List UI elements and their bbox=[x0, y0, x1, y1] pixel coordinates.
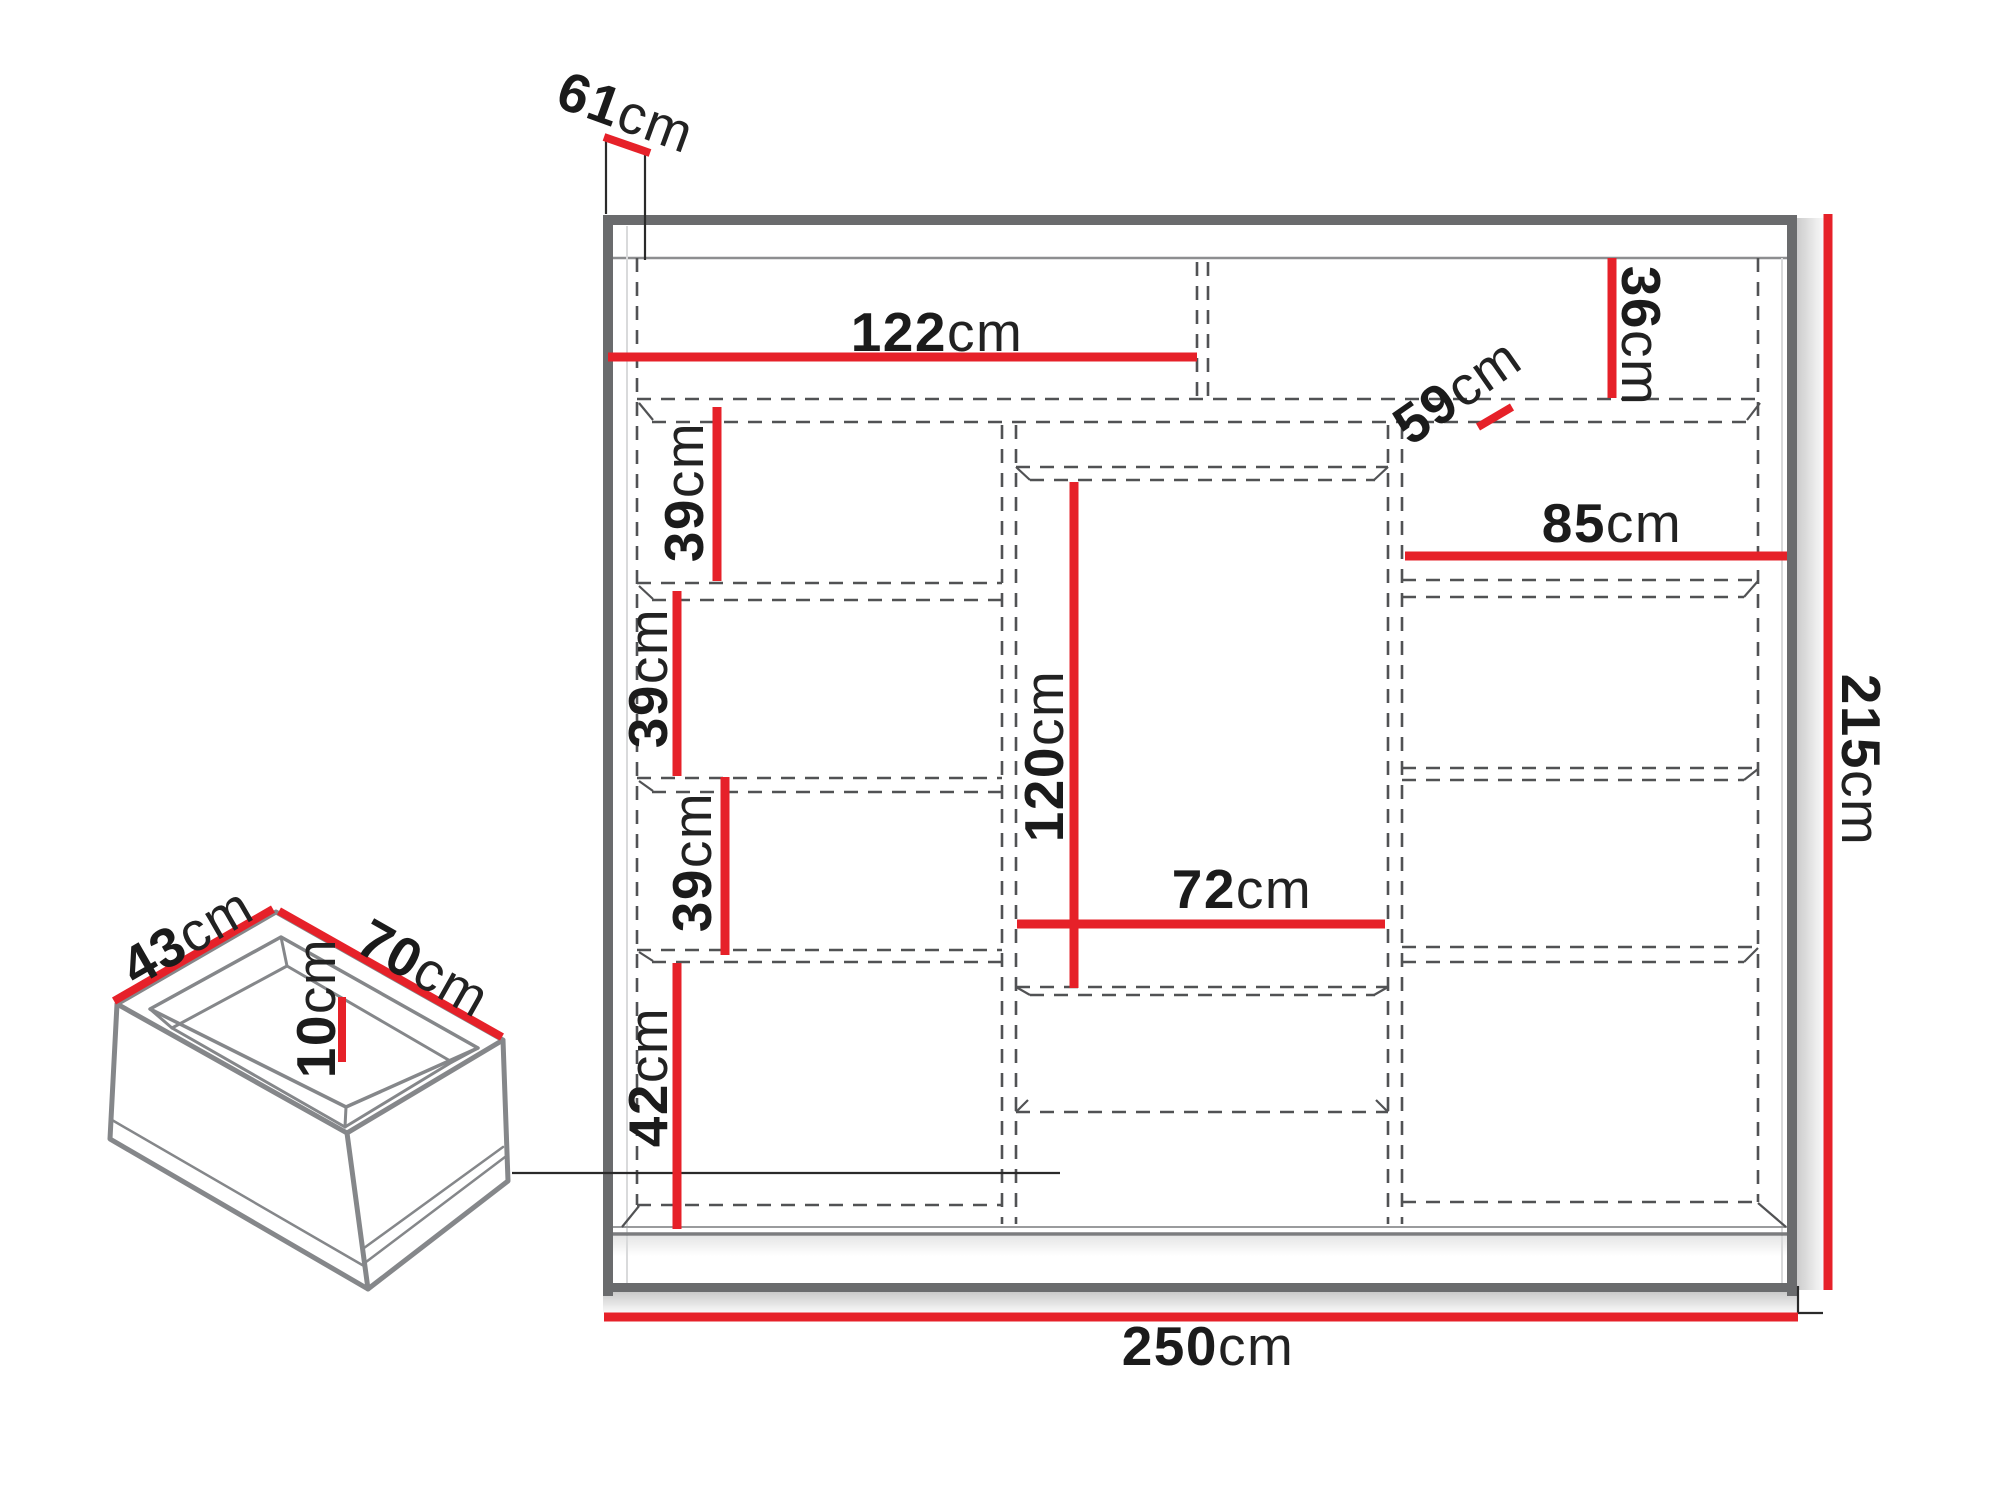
dim-label-drawer-depth: 43cm bbox=[111, 874, 264, 998]
dimension-diagram: 61cm 122cm 36cm 59cm 85cm 39cm 39cm 39cm… bbox=[0, 0, 2000, 1499]
dim-label-drawer-width: 70cm bbox=[348, 906, 501, 1029]
dim-label-shelf-height-2: 39cm bbox=[617, 608, 679, 749]
dim-label-right-shelf-width: 85cm bbox=[1542, 492, 1683, 554]
frame-right-shadow bbox=[1797, 218, 1827, 1290]
dim-label-top-right-width: 59cm bbox=[1382, 325, 1533, 456]
frame-bottom-shadow bbox=[603, 1291, 1797, 1315]
drawer-inner-front-corner bbox=[345, 1107, 346, 1127]
frame-top-bar bbox=[603, 215, 1797, 225]
dim-label-drawer-height: 10cm bbox=[285, 938, 347, 1079]
frame-bottom-bar bbox=[603, 1283, 1797, 1292]
drawer-front-panel-line bbox=[112, 1120, 364, 1266]
dim-label-bottom-section-height: 42cm bbox=[617, 1007, 679, 1148]
dim-label-depth: 61cm bbox=[549, 59, 702, 165]
dim-label-shelf-height-3: 39cm bbox=[661, 792, 723, 933]
frame-right-bar bbox=[1787, 215, 1797, 1296]
dim-label-door-height: 120cm bbox=[1013, 670, 1075, 843]
dim-label-top-shelf-width: 122cm bbox=[851, 301, 1024, 363]
wardrobe-dimension-drawing: 61cm 122cm 36cm 59cm 85cm 39cm 39cm 39cm… bbox=[0, 0, 2000, 1499]
plinth-shadow bbox=[613, 1236, 1787, 1256]
dim-label-door-width: 72cm bbox=[1172, 858, 1313, 920]
drawer-side-rail-line-1 bbox=[366, 1157, 505, 1262]
dim-label-total-height: 215cm bbox=[1830, 674, 1892, 847]
dim-label-top-section-height: 36cm bbox=[1610, 266, 1672, 407]
dim-label-shelf-height-1: 39cm bbox=[653, 422, 715, 563]
frame-left-bar bbox=[603, 215, 613, 1296]
dim-label-total-width: 250cm bbox=[1122, 1315, 1295, 1377]
drawer-side-rail-line-2 bbox=[364, 1147, 503, 1248]
